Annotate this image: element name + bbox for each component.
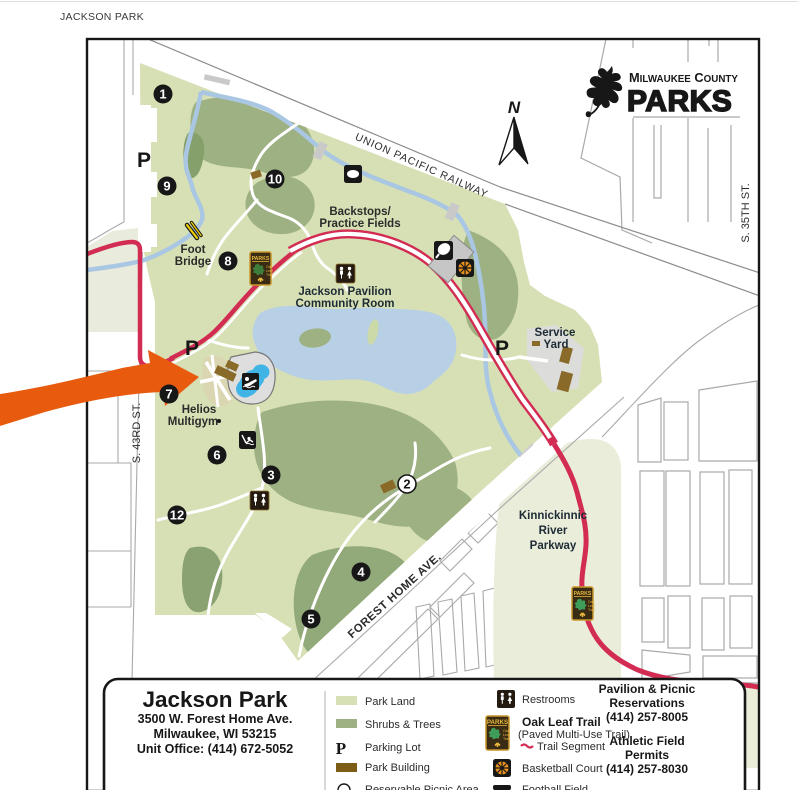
svg-text:PARKS: PARKS [487,719,508,726]
svg-text:Permits: Permits [625,748,669,762]
svg-text:Community Room: Community Room [295,298,394,310]
svg-text:P: P [495,337,509,360]
svg-text:9: 9 [163,179,170,194]
svg-text:JACKSON PARK: JACKSON PARK [60,11,144,23]
svg-text:(414) 257-8030: (414) 257-8030 [606,762,688,776]
svg-text:Kinnickinnic: Kinnickinnic [519,510,588,522]
svg-text:5: 5 [307,612,314,627]
svg-text:Trail: Trail [266,273,273,277]
svg-text:3500 W. Forest Home Ave.: 3500 W. Forest Home Ave. [138,712,293,726]
svg-text:Parking Lot: Parking Lot [365,742,421,754]
svg-text:Service: Service [535,327,576,339]
svg-text:Multigym: Multigym [168,416,218,428]
svg-text:River: River [539,525,568,537]
svg-text:Unit Office: (414) 672-5052: Unit Office: (414) 672-5052 [137,742,293,756]
svg-text:Trail Segment: Trail Segment [537,741,605,753]
svg-text:3: 3 [267,468,274,483]
svg-text:Helios: Helios [182,404,217,416]
svg-text:Practice Fields: Practice Fields [319,218,400,230]
svg-text:Trail: Trail [588,608,595,612]
svg-text:7: 7 [165,387,172,402]
svg-text:Milwaukee, WI 53215: Milwaukee, WI 53215 [154,727,277,741]
svg-text:Football Field: Football Field [522,784,588,790]
svg-text:2: 2 [403,477,410,492]
svg-text:Oak Leaf Trail: Oak Leaf Trail [522,715,601,729]
svg-text:Jackson Pavilion: Jackson Pavilion [298,286,391,298]
svg-text:Jackson Park: Jackson Park [142,687,288,712]
svg-text:Park Building: Park Building [365,762,430,774]
svg-text:(414) 257-8005: (414) 257-8005 [606,710,688,724]
svg-text:Athletic Field: Athletic Field [609,734,684,748]
svg-text:S. 35TH ST.: S. 35TH ST. [740,183,752,242]
svg-text:Pavilion & Picnic: Pavilion & Picnic [599,682,696,696]
svg-text:S. 43RD ST.: S. 43RD ST. [131,403,143,464]
svg-text:8: 8 [224,254,231,269]
svg-text:Park Land: Park Land [365,696,415,708]
svg-text:10: 10 [268,172,282,187]
svg-text:12: 12 [170,508,184,523]
svg-text:4: 4 [357,565,365,580]
svg-text:PARKS: PARKS [627,85,732,118]
svg-text:P: P [336,739,346,758]
svg-text:Trail: Trail [503,737,510,741]
svg-text:Parkway: Parkway [530,540,577,552]
svg-text:P: P [185,337,199,360]
svg-text:Shrubs & Trees: Shrubs & Trees [365,719,441,731]
svg-text:Reservations: Reservations [609,696,685,710]
svg-text:Reservable Picnic Area: Reservable Picnic Area [365,784,480,790]
svg-text:Foot: Foot [181,244,206,256]
svg-text:Yard: Yard [544,339,569,351]
svg-text:6: 6 [213,448,220,463]
svg-text:1: 1 [159,87,166,102]
svg-text:Backstops/: Backstops/ [329,206,391,218]
svg-text:Basketball Court: Basketball Court [522,763,603,775]
svg-text:N: N [508,98,521,117]
svg-text:Bridge: Bridge [175,256,211,268]
svg-text:P: P [137,149,151,172]
svg-text:Restrooms: Restrooms [522,694,576,706]
